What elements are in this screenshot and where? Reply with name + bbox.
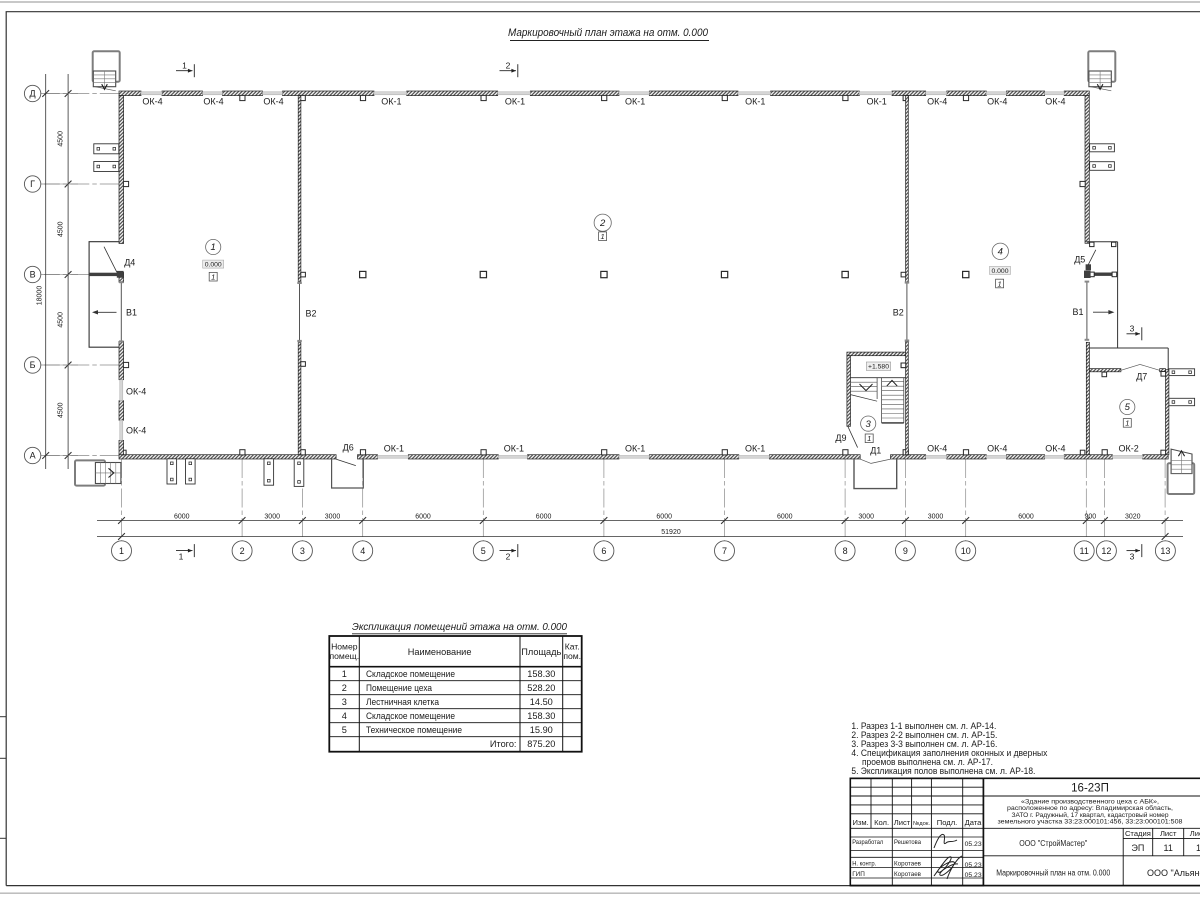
svg-text:11: 11 xyxy=(1164,843,1173,853)
svg-text:6000: 6000 xyxy=(777,513,793,520)
svg-text:1: 1 xyxy=(211,273,215,282)
svg-text:0.000: 0.000 xyxy=(991,268,1008,275)
svg-text:12: 12 xyxy=(1101,546,1111,556)
svg-text:Складское помещение: Складское помещение xyxy=(366,669,455,679)
svg-text:Складское помещение: Складское помещение xyxy=(366,711,455,721)
svg-text:ООО "СтройМастер": ООО "СтройМастер" xyxy=(1019,839,1087,848)
svg-text:В2: В2 xyxy=(893,308,904,318)
svg-text:Изм.: Изм. xyxy=(852,818,868,827)
svg-text:ОК-1: ОК-1 xyxy=(625,97,645,107)
svg-text:3: 3 xyxy=(300,546,305,556)
svg-text:0.000: 0.000 xyxy=(205,262,222,269)
svg-text:ЭП: ЭП xyxy=(1131,843,1144,853)
svg-text:+1.580: +1.580 xyxy=(868,363,889,370)
svg-text:ОК-4: ОК-4 xyxy=(126,426,146,436)
svg-text:ОК-1: ОК-1 xyxy=(745,97,765,107)
svg-text:ОК-4: ОК-4 xyxy=(126,387,146,397)
svg-text:ОК-1: ОК-1 xyxy=(866,97,886,107)
svg-text:Коротаев: Коротаев xyxy=(894,860,921,867)
svg-text:ОК-1: ОК-1 xyxy=(745,444,765,454)
svg-text:Итого:: Итого: xyxy=(490,739,517,749)
svg-text:ОК-1: ОК-1 xyxy=(504,444,524,454)
svg-text:1: 1 xyxy=(119,546,124,556)
svg-text:8: 8 xyxy=(843,546,848,556)
svg-text:3: 3 xyxy=(866,419,872,430)
svg-text:2: 2 xyxy=(506,552,511,562)
svg-text:158.30: 158.30 xyxy=(527,669,555,679)
svg-text:05.23: 05.23 xyxy=(965,862,982,869)
svg-text:ОК-4: ОК-4 xyxy=(987,444,1007,454)
svg-text:2: 2 xyxy=(342,683,347,693)
svg-text:Маркировочный план этажа на от: Маркировочный план этажа на отм. 0.000 xyxy=(508,27,709,39)
svg-text:9: 9 xyxy=(903,546,908,556)
svg-text:Лестничная клетка: Лестничная клетка xyxy=(366,697,440,707)
svg-text:ОК-4: ОК-4 xyxy=(1045,97,1065,107)
svg-text:4: 4 xyxy=(360,546,365,556)
svg-text:В1: В1 xyxy=(126,308,137,318)
svg-text:1: 1 xyxy=(601,232,605,241)
svg-text:Н. контр.: Н. контр. xyxy=(852,860,876,867)
svg-text:ОК-1: ОК-1 xyxy=(381,97,401,107)
svg-text:Экспликация помещений этажа на: Экспликация помещений этажа на отм. 0.00… xyxy=(352,622,567,633)
svg-text:Стадия: Стадия xyxy=(1125,829,1151,838)
svg-text:3020: 3020 xyxy=(1125,513,1141,520)
svg-text:Дата: Дата xyxy=(965,818,983,827)
svg-text:10: 10 xyxy=(961,546,971,556)
svg-text:земельного участка 33:23:00010: земельного участка 33:23:000101:456, 33:… xyxy=(998,818,1183,825)
svg-text:Разработал: Разработал xyxy=(852,838,883,846)
svg-text:Решетова: Решетова xyxy=(894,839,921,846)
svg-text:ОК-2: ОК-2 xyxy=(1118,444,1138,454)
svg-text:4500: 4500 xyxy=(58,402,65,418)
svg-text:900: 900 xyxy=(1084,513,1096,520)
svg-text:158.30: 158.30 xyxy=(527,711,555,721)
svg-text:16-23П: 16-23П xyxy=(1071,783,1109,795)
svg-text:Кат.: Кат. xyxy=(565,642,580,652)
svg-text:4500: 4500 xyxy=(58,221,65,237)
svg-text:ОК-4: ОК-4 xyxy=(142,97,162,107)
svg-text:ОК-1: ОК-1 xyxy=(625,444,645,454)
svg-text:Номер: Номер xyxy=(331,642,358,652)
svg-text:Техническое помещение: Техническое помещение xyxy=(366,725,462,735)
svg-text:875.20: 875.20 xyxy=(527,739,555,749)
svg-text:ОК-4: ОК-4 xyxy=(987,97,1007,107)
svg-text:Лист: Лист xyxy=(1190,829,1200,838)
svg-text:1: 1 xyxy=(179,552,184,562)
svg-text:3: 3 xyxy=(1130,324,1135,334)
svg-text:Д5: Д5 xyxy=(1074,254,1085,264)
svg-text:Д4: Д4 xyxy=(124,257,135,267)
svg-text:1: 1 xyxy=(1196,843,1200,853)
svg-text:6000: 6000 xyxy=(1018,513,1034,520)
svg-text:11: 11 xyxy=(1080,546,1089,556)
svg-text:6: 6 xyxy=(601,546,606,556)
svg-text:1: 1 xyxy=(867,434,871,443)
svg-text:Д6: Д6 xyxy=(343,442,354,452)
svg-text:Площадь: Площадь xyxy=(521,647,561,657)
svg-text:1: 1 xyxy=(342,669,347,679)
svg-text:ОК-1: ОК-1 xyxy=(505,97,525,107)
svg-text:14.50: 14.50 xyxy=(530,697,553,707)
svg-text:5: 5 xyxy=(342,725,347,735)
svg-text:№док.: №док. xyxy=(913,821,930,827)
svg-text:2: 2 xyxy=(240,546,245,556)
svg-text:6000: 6000 xyxy=(415,513,431,520)
svg-text:ООО "Альянс": ООО "Альянс" xyxy=(1147,868,1200,878)
svg-text:4: 4 xyxy=(342,711,347,721)
svg-text:Д9: Д9 xyxy=(835,433,846,443)
svg-text:Лист: Лист xyxy=(1160,829,1177,838)
svg-text:В2: В2 xyxy=(306,309,317,319)
svg-text:3000: 3000 xyxy=(264,513,280,520)
svg-text:4500: 4500 xyxy=(58,131,65,147)
svg-text:5: 5 xyxy=(481,546,486,556)
svg-text:6000: 6000 xyxy=(656,513,672,520)
svg-text:1: 1 xyxy=(1125,419,1129,428)
svg-text:Коротаев: Коротаев xyxy=(894,871,921,878)
svg-text:05.23: 05.23 xyxy=(965,872,982,879)
svg-text:6000: 6000 xyxy=(174,513,190,520)
svg-text:ОК-1: ОК-1 xyxy=(384,444,404,454)
svg-text:ОК-4: ОК-4 xyxy=(263,97,283,107)
svg-text:3000: 3000 xyxy=(928,513,944,520)
svg-text:3000: 3000 xyxy=(325,513,341,520)
svg-text:5. Экспликация полов выполнена: 5. Экспликация полов выполнена см. л. АР… xyxy=(851,766,1035,776)
svg-text:51920: 51920 xyxy=(661,529,681,536)
svg-text:Наименование: Наименование xyxy=(408,647,472,657)
svg-text:4: 4 xyxy=(998,247,1003,258)
svg-text:1: 1 xyxy=(211,242,216,253)
svg-text:4500: 4500 xyxy=(58,312,65,328)
svg-text:ГИП: ГИП xyxy=(852,871,865,878)
svg-text:ОК-4: ОК-4 xyxy=(927,97,947,107)
svg-text:Маркировочный план на отм. 0.0: Маркировочный план на отм. 0.000 xyxy=(996,869,1111,878)
svg-text:В1: В1 xyxy=(1072,307,1083,317)
svg-text:Д1: Д1 xyxy=(870,446,881,456)
svg-text:05.23: 05.23 xyxy=(965,841,982,848)
svg-text:помещ.: помещ. xyxy=(330,651,360,661)
svg-text:15.90: 15.90 xyxy=(530,725,553,735)
svg-text:5: 5 xyxy=(1125,402,1131,413)
svg-text:528.20: 528.20 xyxy=(527,683,555,693)
svg-text:ОК-4: ОК-4 xyxy=(927,444,947,454)
svg-text:3000: 3000 xyxy=(858,513,874,520)
svg-text:Лист: Лист xyxy=(894,818,911,827)
svg-text:1: 1 xyxy=(182,61,187,71)
svg-text:Г: Г xyxy=(30,179,35,189)
svg-text:Помещение цеха: Помещение цеха xyxy=(366,683,433,693)
svg-text:Д: Д xyxy=(30,89,36,99)
svg-text:Д7: Д7 xyxy=(1136,372,1147,382)
svg-text:18000: 18000 xyxy=(37,286,44,306)
svg-text:3: 3 xyxy=(1130,552,1135,562)
svg-text:2: 2 xyxy=(599,218,606,229)
svg-text:А: А xyxy=(30,451,36,461)
svg-text:В: В xyxy=(30,270,36,280)
svg-text:ОК-4: ОК-4 xyxy=(203,97,223,107)
svg-text:6000: 6000 xyxy=(536,513,552,520)
svg-text:ОК-4: ОК-4 xyxy=(1045,444,1065,454)
svg-text:Б: Б xyxy=(30,360,36,370)
svg-text:3: 3 xyxy=(342,697,347,707)
svg-text:Кол.: Кол. xyxy=(874,818,889,827)
svg-text:Подл.: Подл. xyxy=(937,818,958,827)
svg-text:7: 7 xyxy=(722,546,727,556)
svg-text:1: 1 xyxy=(998,279,1002,288)
svg-text:13: 13 xyxy=(1160,546,1170,556)
svg-text:пом.: пом. xyxy=(563,651,581,661)
svg-text:2: 2 xyxy=(506,61,511,71)
